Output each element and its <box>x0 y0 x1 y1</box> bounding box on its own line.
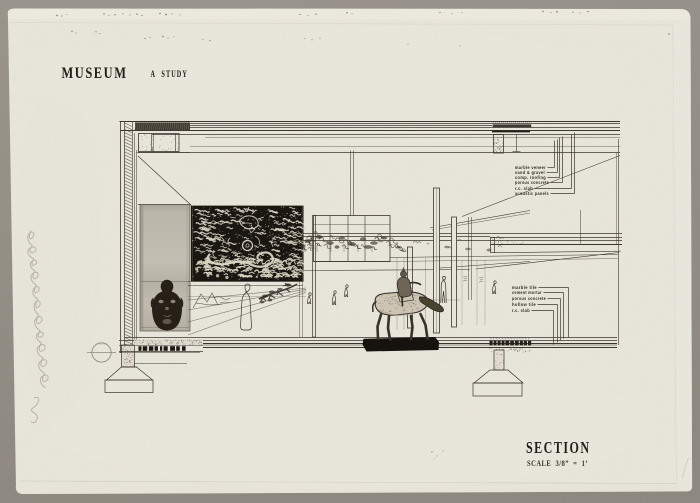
svg-text:acoustic panels: acoustic panels <box>515 191 549 197</box>
svg-text:MUSEUM: MUSEUM <box>62 65 128 82</box>
svg-text:porous concrete: porous concrete <box>515 180 549 186</box>
svg-text:cement mortar: cement mortar <box>512 290 542 296</box>
svg-text:A STUDY: A STUDY <box>151 69 189 79</box>
svg-text:hollow tile: hollow tile <box>512 302 536 308</box>
svg-text:SCALE 3/8” = 1’: SCALE 3/8” = 1’ <box>527 458 588 468</box>
svg-text:porous concrete: porous concrete <box>512 296 546 302</box>
svg-text:SECTION: SECTION <box>526 438 591 457</box>
svg-text:r.c. slab: r.c. slab <box>512 308 530 314</box>
